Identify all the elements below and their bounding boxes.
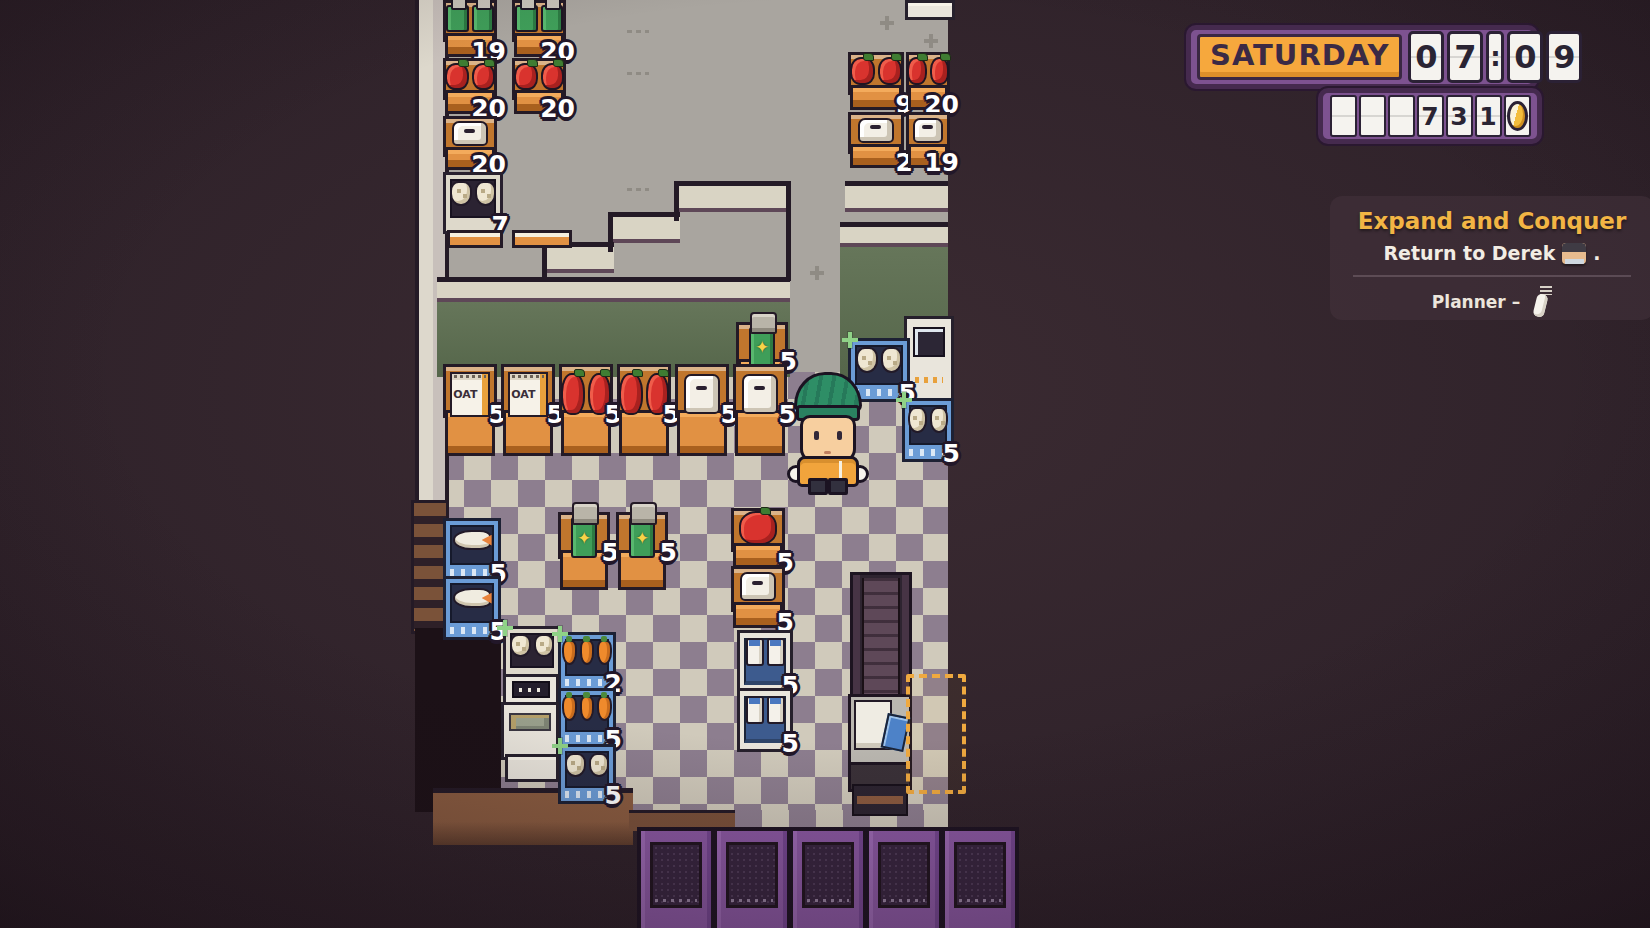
player-leg [808,478,828,495]
time-digit: 9 [1546,31,1582,83]
shelf-oat[interactable]: OAT5 [443,364,497,456]
apple-item [443,61,497,92]
milk-item [740,694,790,726]
shelf-paper[interactable]: 20 [443,116,497,170]
clock-panel: SATURDAY 07:09 [1186,25,1538,89]
fish-item [446,524,498,556]
shelf-fish[interactable]: 5 [443,576,501,640]
quest-panel: Expand and Conquer Return to Derek . Pla… [1330,196,1650,320]
time-digit: 0 [1507,31,1543,83]
wall-segment [845,181,948,212]
shelf-apple[interactable]: 9 [848,52,904,110]
store-door[interactable] [789,827,867,928]
door-window [802,842,854,908]
shelf-chicken[interactable]: 5 [902,398,954,462]
wall-edge-line [542,242,547,282]
wall-edge-line [786,181,791,281]
money-digit [1388,95,1415,137]
shelf-apple[interactable]: 5 [731,508,785,568]
paper-item [848,115,904,146]
chicken-item [446,178,500,209]
soda-green-item [512,3,566,35]
door-window [726,842,778,908]
stock-count: 19 [924,150,959,175]
door-window [650,842,702,908]
apple-item [512,61,566,92]
time-digit: 0 [1408,31,1444,83]
store-door[interactable] [865,827,943,928]
milk-item [740,636,790,668]
quest-objective-text: Return to Derek [1383,242,1555,264]
sparkle-icon [842,332,858,348]
wall-top-face [610,217,680,243]
wall-top-face [437,282,790,302]
shelf-paper[interactable]: 5 [731,566,785,628]
carrot-item [561,694,613,724]
shelf-white-block[interactable] [905,0,955,20]
quest-divider [1353,275,1632,277]
paper-item [906,115,950,146]
time-digit: 7 [1447,31,1483,83]
floor-mark [924,34,938,48]
soda-green-item [443,3,497,35]
planner-hint: Planner – [1330,286,1650,318]
floor-mark [810,266,824,280]
gray-unit-item [504,708,556,737]
shelf-carrot[interactable]: 2 [558,632,616,692]
door-window [954,842,1006,908]
store-door[interactable] [941,827,1019,928]
apple-item [848,55,904,87]
store-door[interactable] [637,827,715,928]
planner-pen-icon [1532,286,1552,318]
game-viewport: 19202020207920219✦55OAT5OAT5555555✦5✦555… [0,0,1650,928]
stock-count: 5 [605,783,622,808]
floor-mark [627,72,649,75]
shelf-apple[interactable]: 20 [443,58,497,114]
apple-item [731,511,785,545]
shelf-apple[interactable]: 5 [617,364,671,456]
shelf-paper[interactable]: 19 [906,112,950,168]
wall-segment [610,212,680,243]
shelf-chicken[interactable]: 5 [558,744,616,804]
player-leg [828,478,848,495]
quest-title: Expand and Conquer [1330,208,1650,234]
shelf-paper[interactable]: 5 [733,364,787,456]
money-digit [1330,95,1357,137]
stock-count: 20 [540,96,575,121]
jar-item [572,502,600,525]
chicken-item [561,750,613,780]
fish-item [446,582,498,614]
wall-edge-line [608,212,613,252]
shelf-gray-unit[interactable] [501,702,559,760]
wall-top-face [845,186,948,212]
stock-count: 5 [660,540,677,565]
money-digit: 1 [1475,95,1502,137]
derek-portrait-icon [1562,243,1586,264]
chicken-item [506,632,558,660]
wall-segment [676,181,790,212]
jar-item [750,312,778,334]
shelf-soda-star[interactable]: ✦5 [558,512,610,590]
carrot-item [561,638,613,668]
shelf-paper[interactable]: 2 [848,112,904,168]
floor-mark [627,188,649,191]
sparkle-icon [552,738,568,754]
paper-item [731,569,785,604]
checkout-conveyor[interactable] [850,572,912,702]
shelf-edge[interactable] [447,230,503,248]
apple-item [906,55,950,87]
sparkle-icon [497,620,513,636]
money-digit [1359,95,1386,137]
floor-mark [627,30,649,33]
money-digit: 3 [1446,95,1473,137]
quest-objective-punctuation: . [1593,242,1600,264]
shelf-soda-star[interactable]: ✦5 [616,512,668,590]
wall-edge-line [674,181,679,221]
money-panel: 731 [1318,88,1542,144]
shelf-milk[interactable]: 5 [737,630,793,694]
wall-top-face [544,247,614,273]
shelf-apple[interactable]: 20 [512,58,566,114]
door-window [878,842,930,908]
shelf-oat[interactable]: OAT5 [501,364,555,456]
coin-icon [1504,95,1531,137]
wall-top-face [676,186,790,212]
stock-count: 5 [782,731,799,756]
shelf-fish[interactable]: 5 [443,518,501,582]
money-digit: 7 [1417,95,1444,137]
time-separator: : [1486,31,1504,83]
shelf-soda-green[interactable]: 19 [443,0,497,57]
wall-top-face [840,227,948,247]
stock-count: 5 [943,441,960,466]
shelf-milk[interactable]: 5 [737,688,793,752]
planner-label: Planner – [1432,292,1520,312]
shelf-apple[interactable]: 5 [559,364,613,456]
placement-marker[interactable] [906,674,966,794]
chicken-item [905,404,951,436]
day-label: SATURDAY [1197,34,1402,80]
sparkle-icon [552,626,568,642]
player-character[interactable] [793,372,863,490]
shelf-soda-green[interactable]: 20 [512,0,566,57]
shelf-edge[interactable] [512,230,572,248]
shelf-apple[interactable]: 20 [906,52,950,110]
paper-item [443,119,497,149]
jar-item [630,502,658,525]
counter-base [852,784,908,816]
shelf-chicken[interactable]: 7 [443,172,503,234]
shelf-paper[interactable]: 5 [675,364,729,456]
store-door[interactable] [713,827,791,928]
shelf-white-block[interactable] [505,754,559,782]
cash-register[interactable] [848,694,912,792]
floor-mark [880,16,894,30]
time-display: 07:09 [1408,31,1582,83]
sparkle-icon [896,392,912,408]
quest-objective: Return to Derek . [1330,242,1650,264]
